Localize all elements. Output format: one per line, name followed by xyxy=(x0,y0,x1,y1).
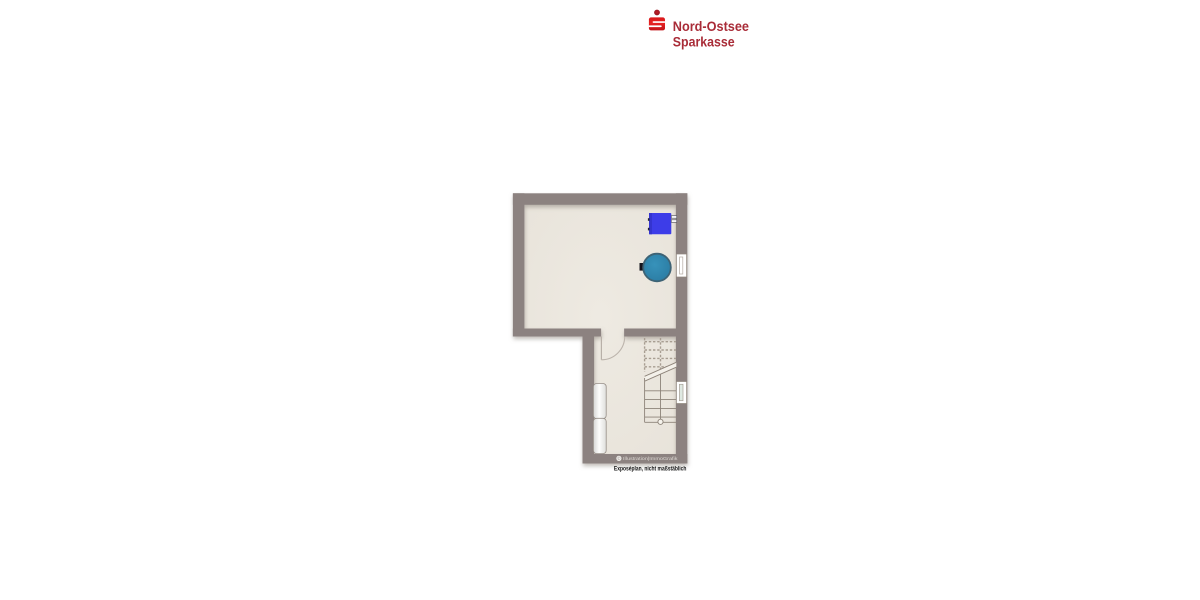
svg-text:Sparkasse: Sparkasse xyxy=(673,34,735,50)
svg-text:Illustration|ImmoGrafik: Illustration|ImmoGrafik xyxy=(623,456,678,462)
svg-text:Exposéplan, nicht maßstäblich: Exposéplan, nicht maßstäblich xyxy=(614,466,687,473)
svg-text:Nord-Ostsee: Nord-Ostsee xyxy=(673,18,749,34)
